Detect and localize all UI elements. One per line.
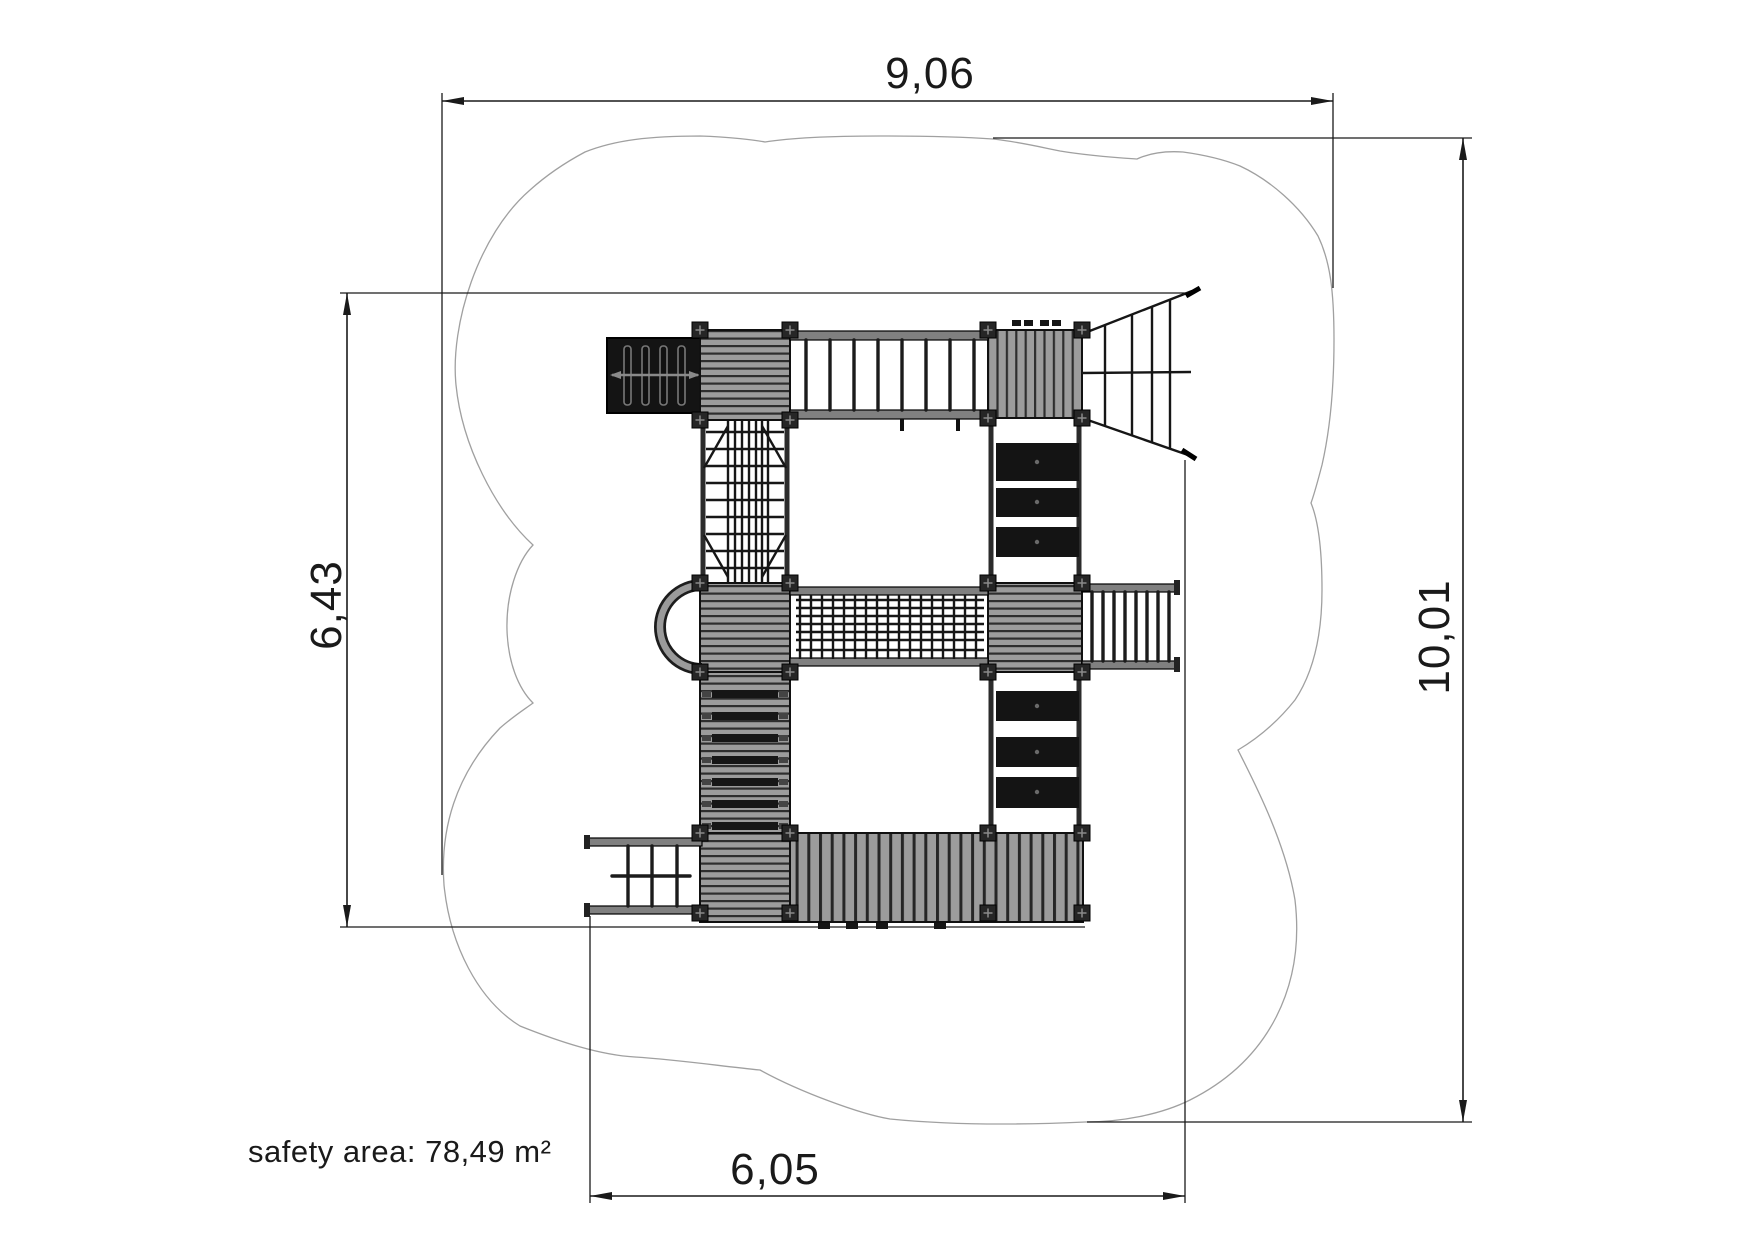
corner-post <box>692 664 708 680</box>
corner-post <box>980 575 996 591</box>
corner-post <box>692 412 708 428</box>
corner-post <box>782 412 798 428</box>
corner-post <box>692 825 708 841</box>
step-ramp-upper <box>991 420 1079 581</box>
corner-post <box>692 575 708 591</box>
deck-mid-left <box>700 583 790 672</box>
staircase <box>700 672 790 833</box>
corner-post <box>1074 322 1090 338</box>
corner-post <box>782 905 798 921</box>
corner-post <box>782 322 798 338</box>
dim-width-label: 9,06 <box>885 49 975 98</box>
panel-top-left <box>607 338 700 413</box>
deck-top-right <box>988 330 1082 418</box>
safety-area-label: safety area: 78,49 m² <box>248 1134 551 1169</box>
deck-mid-right <box>988 583 1082 672</box>
dim-structure-height-label: 6,43 <box>302 560 351 650</box>
corner-post <box>1074 664 1090 680</box>
corner-post <box>980 664 996 680</box>
deck-bottom-left <box>700 833 790 922</box>
platform-bottom <box>790 833 1083 922</box>
corner-post <box>980 410 996 426</box>
corner-post <box>1074 905 1090 921</box>
corner-post <box>980 322 996 338</box>
corner-post <box>980 825 996 841</box>
dim-height-label: 10,01 <box>1410 579 1459 694</box>
dim-structure-width-label: 6,05 <box>730 1145 820 1194</box>
corner-post <box>1074 410 1090 426</box>
corner-post <box>1074 575 1090 591</box>
plan-drawing: 9,06 10,01 6,43 6,05 <box>0 0 1753 1240</box>
corner-post <box>782 825 798 841</box>
corner-post <box>692 905 708 921</box>
corner-post <box>1074 825 1090 841</box>
corner-post <box>782 664 798 680</box>
corner-post <box>980 905 996 921</box>
corner-post <box>782 575 798 591</box>
deck-top-left <box>700 330 790 420</box>
corner-post <box>692 322 708 338</box>
step-ramp-lower <box>991 674 1079 831</box>
